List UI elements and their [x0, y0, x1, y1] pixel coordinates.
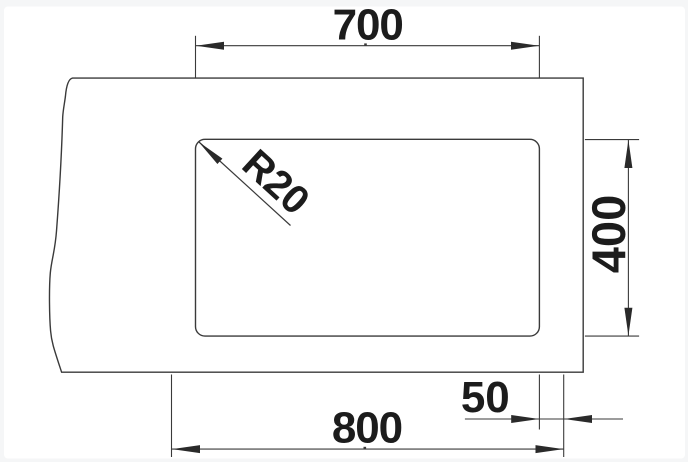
svg-text:800: 800: [332, 403, 402, 452]
svg-text:400: 400: [582, 195, 635, 273]
svg-text:50: 50: [461, 373, 510, 422]
svg-text:700: 700: [333, 1, 403, 50]
